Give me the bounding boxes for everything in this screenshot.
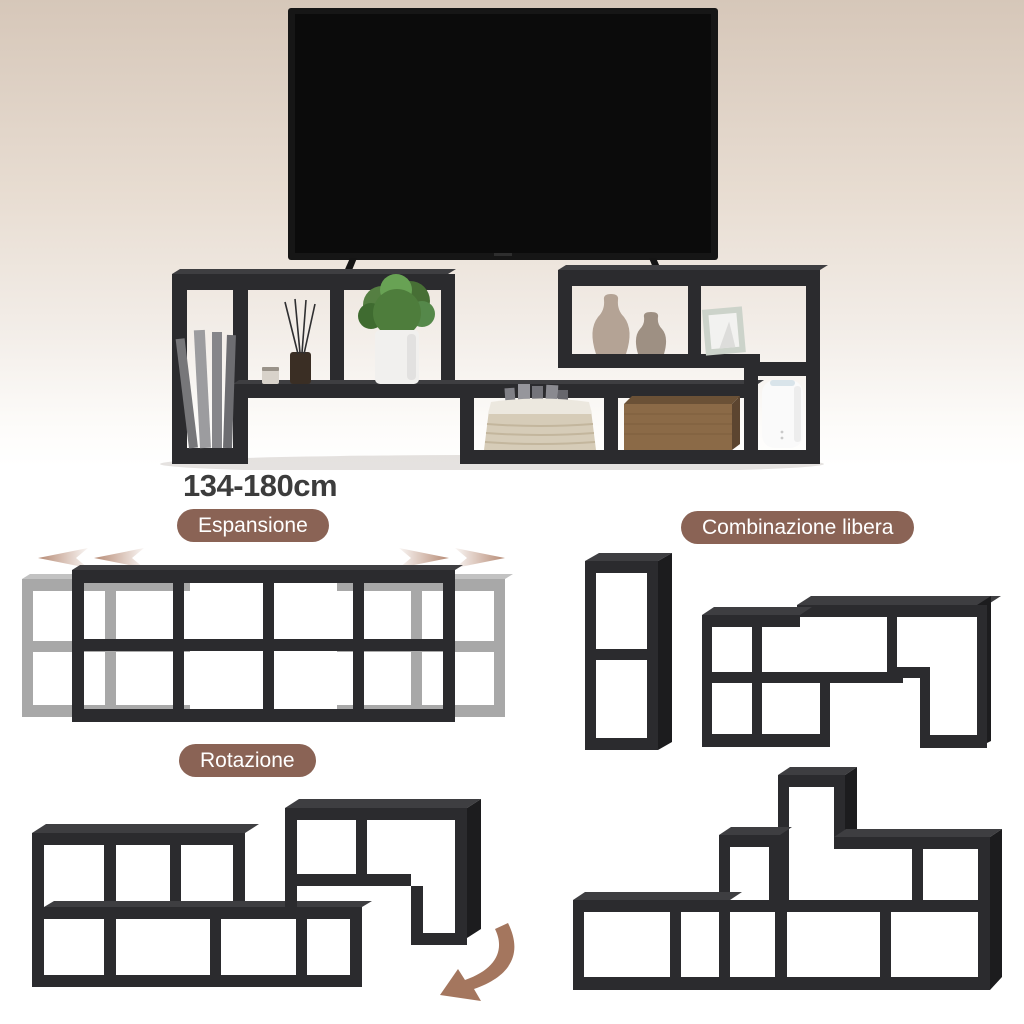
product-image: 134-180cm Espansione Combinazione libera… [0, 0, 1024, 1024]
tv [288, 8, 718, 285]
config-vertical-tower [585, 553, 672, 750]
config-s-shape [702, 596, 1001, 748]
dimension-label: 134-180cm [183, 468, 337, 504]
potted-plant [358, 274, 435, 384]
wooden-box [624, 396, 740, 450]
badge-rotazione: Rotazione [179, 744, 316, 777]
config-stepped [573, 767, 1002, 990]
badge-combinazione-libera: Combinazione libera [681, 511, 914, 544]
stepped-configuration-diagram [560, 765, 1020, 1000]
rotation-left-piece [32, 824, 372, 987]
rotation-diagram [8, 783, 556, 1023]
tv-stand-scene [0, 0, 1024, 470]
free-combination-diagram [560, 548, 1024, 760]
scene-backdrop [0, 0, 1024, 467]
humidifier [762, 380, 803, 448]
incense-diffuser [262, 299, 315, 384]
expansion-diagram [10, 545, 530, 745]
tv-logo [494, 253, 512, 256]
badge-espansione: Espansione [177, 509, 329, 542]
vase-large [592, 294, 629, 354]
rotation-right-piece [285, 799, 481, 945]
photo-frame [702, 306, 746, 355]
vase-small [636, 312, 666, 354]
